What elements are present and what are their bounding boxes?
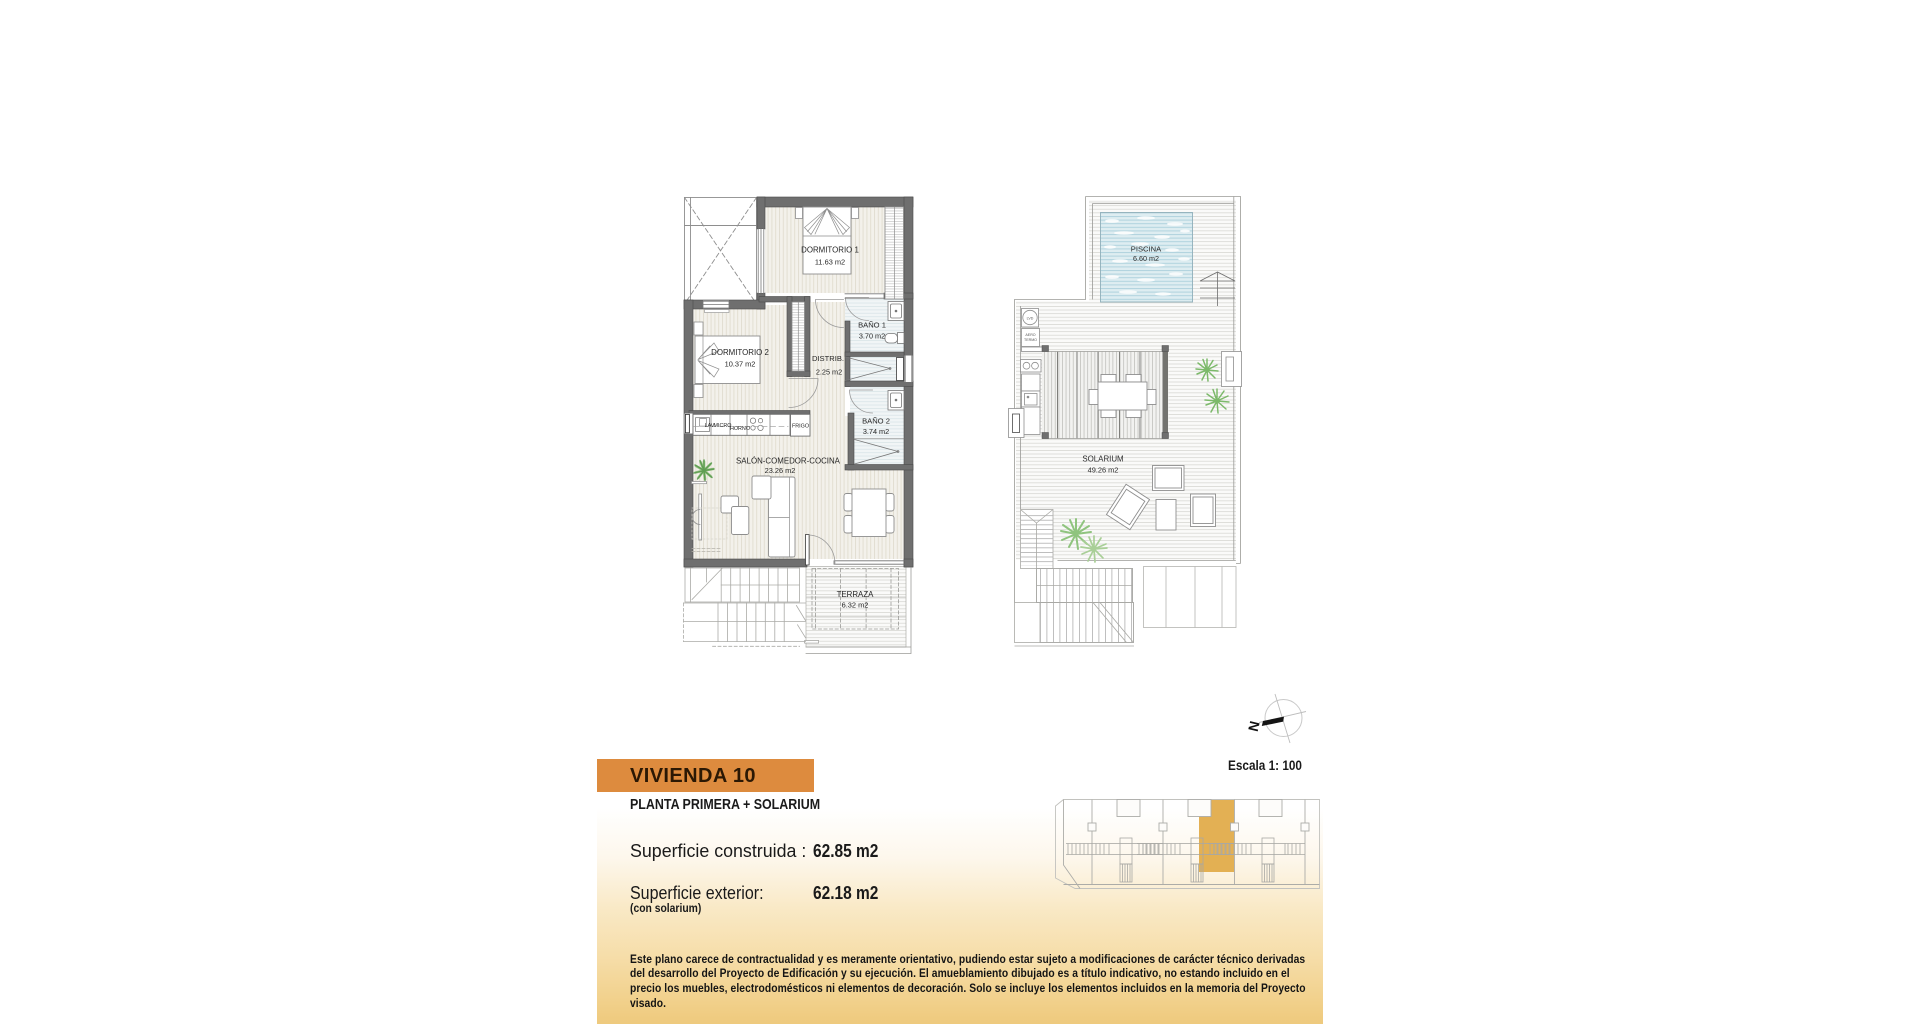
svg-text:TERRAZA: TERRAZA — [837, 590, 875, 599]
svg-text:SOLARIUM: SOLARIUM — [1082, 455, 1123, 464]
svg-text:MICRO: MICRO — [714, 423, 732, 429]
svg-text:49.26 m2: 49.26 m2 — [1088, 466, 1119, 475]
svg-text:23.26 m2: 23.26 m2 — [765, 466, 796, 475]
svg-text:BAÑO 1: BAÑO 1 — [858, 321, 886, 330]
svg-text:10.37 m2: 10.37 m2 — [725, 360, 756, 369]
svg-text:3.74 m2: 3.74 m2 — [863, 427, 889, 436]
svg-text:HORNO: HORNO — [730, 426, 750, 432]
svg-text:2.25 m2: 2.25 m2 — [816, 368, 842, 377]
svg-text:6.60 m2: 6.60 m2 — [1133, 254, 1159, 263]
svg-text:N: N — [1245, 719, 1263, 732]
svg-text:SALÓN-COMEDOR-COCINA: SALÓN-COMEDOR-COCINA — [736, 457, 841, 466]
svg-text:AERO: AERO — [1025, 333, 1035, 337]
svg-text:TERMO: TERMO — [1024, 338, 1037, 342]
svg-text:DORMITORIO 2: DORMITORIO 2 — [711, 348, 769, 357]
svg-text:LVD: LVD — [1027, 317, 1034, 321]
svg-text:6.32 m2: 6.32 m2 — [842, 601, 869, 610]
svg-text:DORMITORIO 1: DORMITORIO 1 — [801, 246, 859, 255]
svg-text:3.70 m2: 3.70 m2 — [859, 332, 885, 341]
svg-text:11.63 m2: 11.63 m2 — [815, 258, 845, 267]
svg-text:FRIGO: FRIGO — [792, 424, 809, 430]
svg-text:DISTRIB.: DISTRIB. — [812, 354, 844, 363]
svg-text:PISCINA: PISCINA — [1131, 245, 1162, 254]
svg-text:BAÑO 2: BAÑO 2 — [862, 417, 890, 426]
